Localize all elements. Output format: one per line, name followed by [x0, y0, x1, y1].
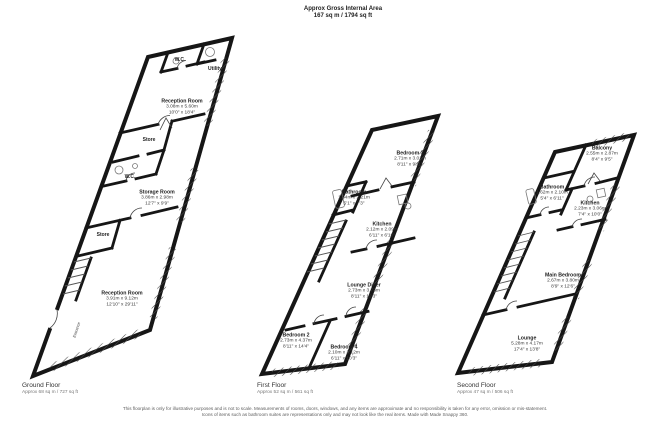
room-label-store-1: Store: [143, 137, 156, 143]
gross-internal-area-title: Approx Gross Internal Area: [304, 6, 382, 13]
second-floor-plan: [458, 135, 634, 373]
floorplan-page: Approx Gross Internal Area 167 sq m / 17…: [0, 0, 670, 430]
room-label-store-2: Store: [97, 232, 110, 238]
ground-floor-plan: [33, 38, 232, 376]
gross-internal-area-value: 167 sq m / 1794 sq ft: [304, 13, 382, 20]
room-label-bathroom-second: Bathroom 1.62m x 2.10m 5'4" x 6'11": [536, 185, 568, 204]
ground-floor-title: Ground Floor: [22, 382, 78, 390]
second-floor-area: Approx 47 sq m / 506 sq ft: [457, 390, 513, 396]
second-floor-outline: [458, 135, 634, 373]
room-label-bedroom-4: Bedroom 4 2.10m x 3.12m 6'11" x 10'3": [328, 345, 360, 364]
room-label-reception-room-2: Reception Room 3.91m x 9.12m 12'10" x 29…: [101, 291, 142, 310]
disclaimer-text: This floorplan is only for illustrative …: [119, 406, 551, 418]
room-label-kitchen-second: Kitchen 2.23m x 3.06m 7'4" x 10'0": [574, 201, 606, 220]
room-label-balcony: Balcony 2.55m x 2.87m 8'4" x 9'5": [586, 146, 618, 165]
room-label-lounge-diner: Lounge Diner 2.73m x 3.73m 8'11" x 12'3": [347, 283, 380, 302]
first-floor-area: Approx 52 sq m / 561 sq ft: [257, 390, 313, 396]
room-label-wc-ground-top: W.C.: [175, 57, 186, 63]
room-label-main-bedroom: Main Bedroom 2.67m x 3.80m 8'9" x 12'6": [545, 273, 581, 292]
room-label-utility: Utility: [208, 66, 222, 72]
room-label-bathroom-first: Bathroom 1.54m x 2.21m 5'1" x 7'3": [338, 190, 370, 209]
room-label-storage-room: Storage Room 3.86m x 2.98m 12'7" x 9'9": [139, 190, 174, 209]
second-floor-title: Second Floor: [457, 382, 513, 390]
ground-floor-outline: [33, 38, 232, 376]
ground-floor-footer: Ground Floor Approx 68 sq m / 727 sq ft: [22, 382, 78, 396]
first-floor-title: First Floor: [257, 382, 313, 390]
floorplan-canvas: [0, 0, 670, 430]
room-label-kitchen-first: Kitchen 2.12m x 2.09m 6'11" x 6'10": [366, 222, 398, 241]
page-header: Approx Gross Internal Area 167 sq m / 17…: [304, 6, 382, 20]
room-label-reception-room-1: Reception Room 3.08m x 5.60m 10'0" x 18'…: [161, 99, 202, 118]
ground-floor-area: Approx 68 sq m / 727 sq ft: [22, 390, 78, 396]
room-label-wc-ground-mid: W.C.: [125, 174, 136, 180]
room-label-bedroom-2: Bedroom 2 2.73m x 4.37m 8'11" x 14'4": [280, 333, 312, 352]
room-label-bedroom-3: Bedroom 3 2.71m x 3.01m 8'11" x 9'11": [394, 151, 426, 170]
second-floor-footer: Second Floor Approx 47 sq m / 506 sq ft: [457, 382, 513, 396]
room-label-lounge: Lounge 5.28m x 4.17m 17'4" x 13'8": [511, 336, 543, 355]
first-floor-footer: First Floor Approx 52 sq m / 561 sq ft: [257, 382, 313, 396]
